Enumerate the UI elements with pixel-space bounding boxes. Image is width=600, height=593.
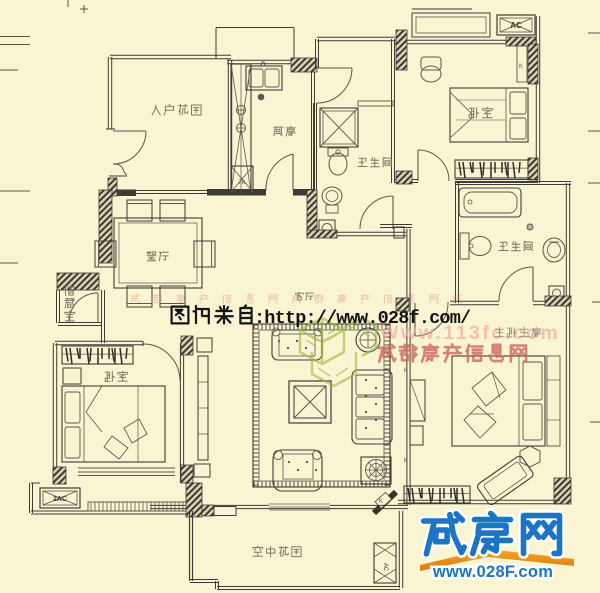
svg-text:AC: AC [510, 21, 522, 30]
svg-text:2AC: 2AC [53, 496, 67, 503]
svg-text::http://www.028f.com/: :http://www.028f.com/ [254, 308, 471, 329]
svg-text:www.028F.com: www.028F.com [432, 563, 553, 581]
svg-text:7k: 7k [238, 179, 246, 186]
svg-text:K: K [519, 64, 523, 70]
svg-text:K: K [379, 499, 383, 505]
svg-text:AC: AC [382, 563, 388, 572]
